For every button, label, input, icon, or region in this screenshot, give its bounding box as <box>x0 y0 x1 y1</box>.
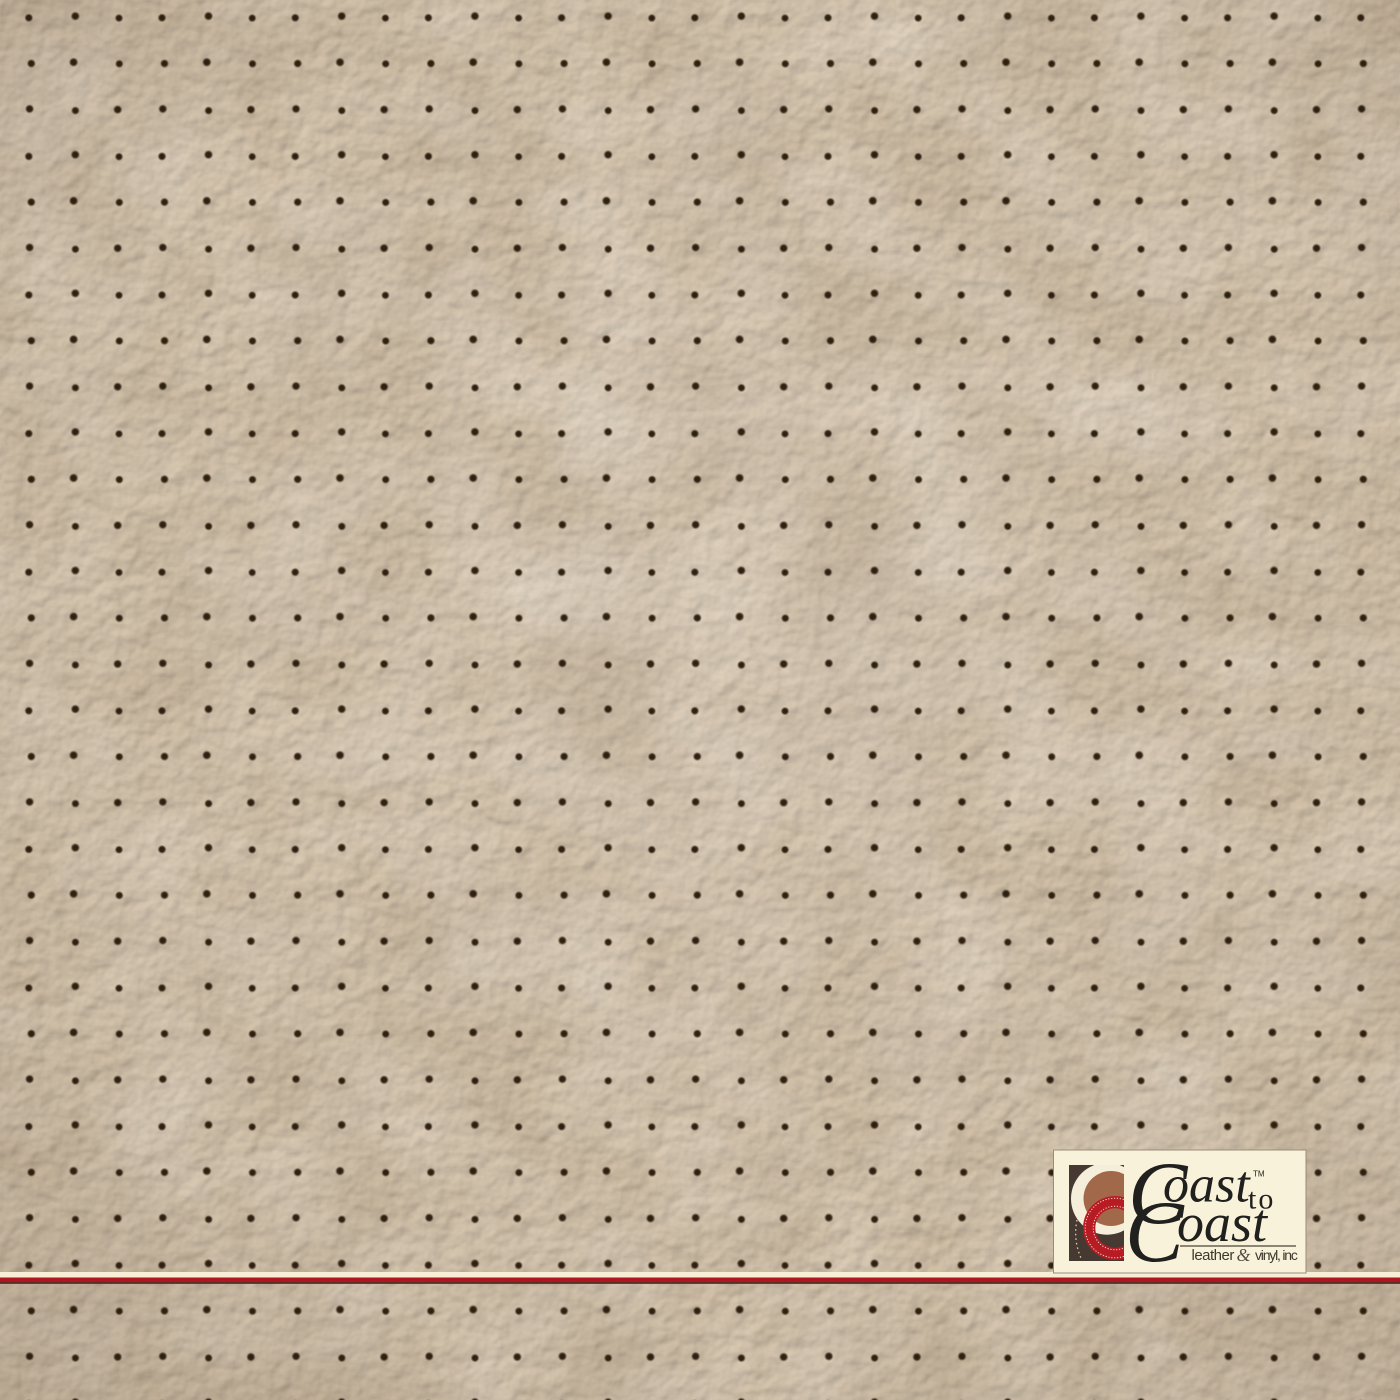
svg-text:TM: TM <box>1253 1170 1265 1179</box>
svg-text:&: & <box>1237 1245 1251 1265</box>
svg-text:oast: oast <box>1177 1193 1269 1253</box>
svg-text:vinyl, inc: vinyl, inc <box>1255 1247 1298 1263</box>
svg-text:C: C <box>1125 1184 1185 1281</box>
svg-text:leather: leather <box>1192 1247 1235 1264</box>
